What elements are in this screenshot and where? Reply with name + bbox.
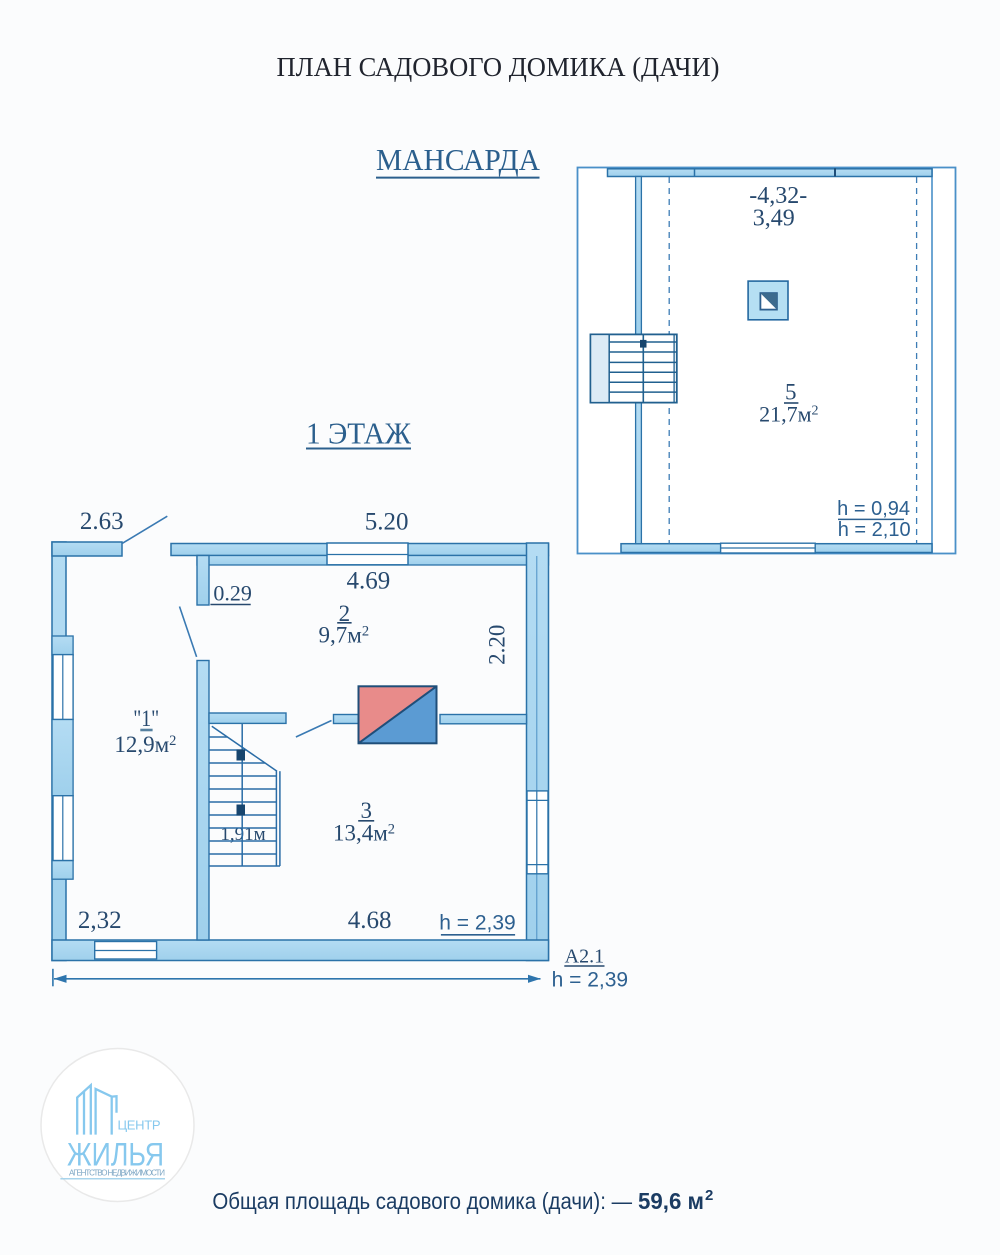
svg-text:ПЛАН САДОВОГО ДОМИКА (ДАЧИ): ПЛАН САДОВОГО ДОМИКА (ДАЧИ)	[277, 52, 720, 82]
svg-text:А2.1: А2.1	[565, 946, 604, 968]
svg-text:9,7м2: 9,7м2	[319, 623, 370, 648]
svg-text:h = 0,94: h = 0,94	[837, 498, 910, 520]
svg-text:0.29: 0.29	[213, 581, 252, 606]
svg-text:4.68: 4.68	[348, 907, 392, 934]
svg-text:Общая площадь садового домика: Общая площадь садового домика (дачи): —	[212, 1188, 632, 1214]
svg-text:59,6 м: 59,6 м	[638, 1188, 704, 1214]
svg-text:h = 2,39: h = 2,39	[552, 969, 628, 992]
svg-text:2.20: 2.20	[485, 625, 510, 665]
svg-text:4.69: 4.69	[347, 568, 391, 595]
svg-text:"1": "1"	[133, 706, 159, 731]
svg-text:ЦЕНТР: ЦЕНТР	[118, 1118, 161, 1133]
svg-text:21,7м2: 21,7м2	[759, 402, 818, 427]
svg-text:3: 3	[360, 798, 372, 823]
svg-text:2.63: 2.63	[80, 508, 124, 535]
svg-text:12,9м2: 12,9м2	[114, 732, 176, 757]
svg-text:5.20: 5.20	[365, 509, 409, 536]
svg-text:АГЕНТСТВО НЕДВИЖИМОСТИ: АГЕНТСТВО НЕДВИЖИМОСТИ	[69, 1169, 165, 1178]
svg-text:МАНСАРДА: МАНСАРДА	[376, 142, 541, 177]
svg-text:3,49: 3,49	[753, 206, 795, 232]
svg-text:ЖИЛЬЯ: ЖИЛЬЯ	[67, 1137, 164, 1173]
svg-text:2,32: 2,32	[78, 907, 122, 934]
svg-text:h = 2,39: h = 2,39	[439, 912, 515, 935]
svg-text:1 ЭТАЖ: 1 ЭТАЖ	[306, 416, 411, 451]
svg-text:1,91м: 1,91м	[220, 824, 265, 845]
svg-text:2: 2	[705, 1187, 713, 1204]
svg-text:h = 2,10: h = 2,10	[838, 519, 911, 541]
svg-text:13,4м2: 13,4м2	[333, 821, 395, 846]
